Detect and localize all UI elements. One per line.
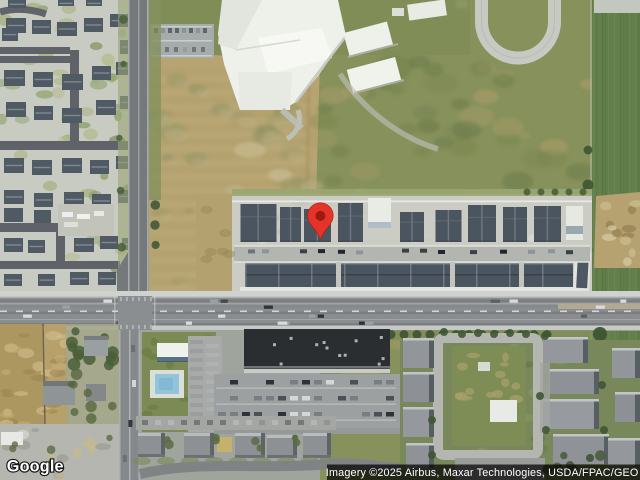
svg-text:Imagery ©2025 Airbus, Maxar Te: Imagery ©2025 Airbus, Maxar Technologies… xyxy=(326,467,639,479)
svg-text:Google: Google xyxy=(7,457,64,475)
